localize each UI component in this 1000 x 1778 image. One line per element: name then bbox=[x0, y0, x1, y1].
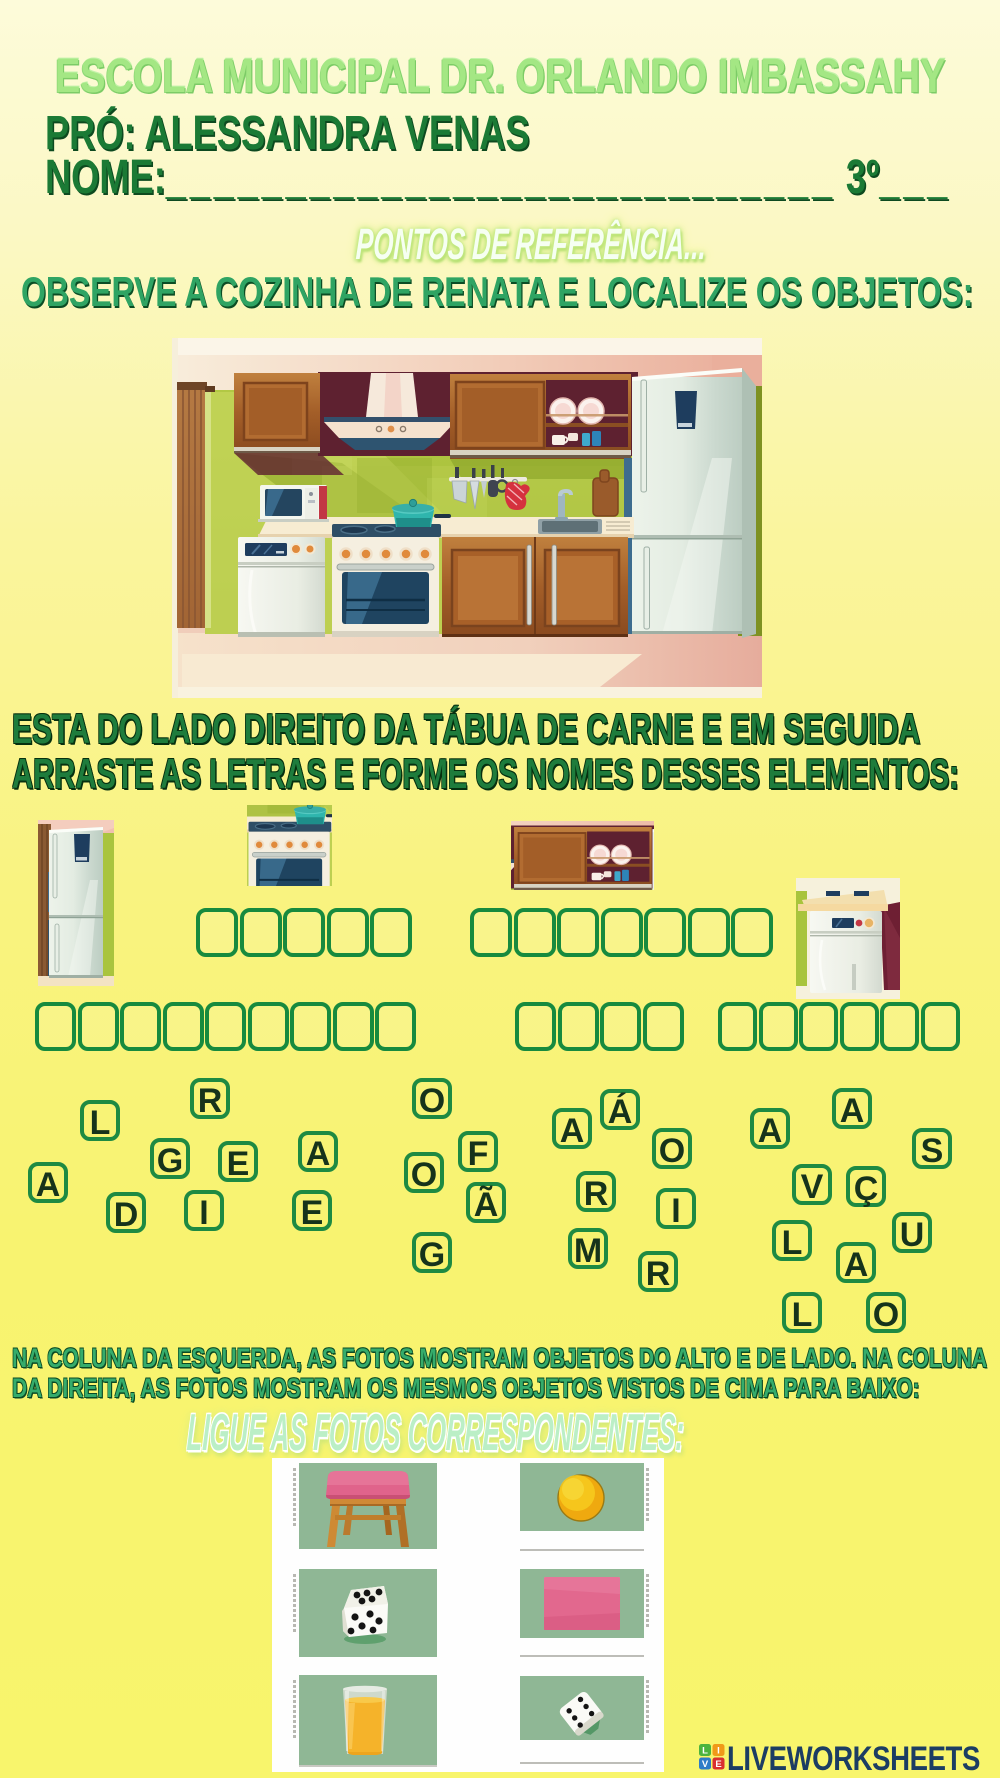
svg-text:L: L bbox=[702, 1746, 708, 1757]
svg-text:V: V bbox=[702, 1759, 709, 1770]
svg-text:E: E bbox=[715, 1759, 721, 1770]
svg-text:I: I bbox=[717, 1746, 720, 1757]
